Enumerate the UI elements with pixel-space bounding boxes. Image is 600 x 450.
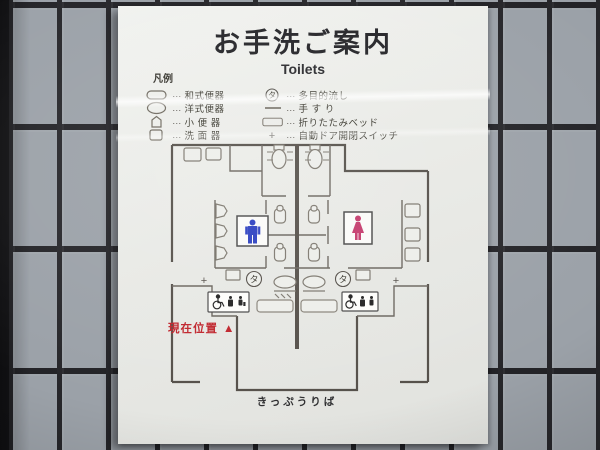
womens-room-sign <box>344 212 372 244</box>
multi-purpose-sink-symbol: タ <box>262 88 284 102</box>
multi-sink-char-right: タ <box>338 275 347 285</box>
legend-dots: … <box>172 116 182 127</box>
washbasins-top-left <box>184 148 221 161</box>
handrail-symbol <box>262 101 284 115</box>
accessibility-box-left <box>208 292 249 312</box>
auto-door-switch-left: + <box>201 275 207 287</box>
legend-item-squat-toilet: … 和式便器 <box>144 88 262 102</box>
legend-dots: … <box>172 89 182 100</box>
legend-dots: … <box>286 116 296 127</box>
urinal-symbol <box>144 115 170 129</box>
ticket-area-label: きっぷうりば <box>257 395 338 408</box>
squat-toilet-symbol <box>144 88 170 102</box>
urinals <box>216 204 227 260</box>
accessibility-box-right <box>342 292 378 311</box>
toilet-guide-sign: お手洗ご案内 Toilets 凡例 … 和式便器 … 洋式便器 <box>118 6 488 444</box>
legend-item-handrail: … 手 す り <box>262 102 480 116</box>
floor-plan: タ タ + + <box>118 134 488 434</box>
legend-dots: … <box>286 103 296 114</box>
current-location-label: 現在位置▲ <box>168 321 235 335</box>
legend: 凡例 … 和式便器 … 洋式便器 <box>144 70 480 142</box>
sign-title: お手洗ご案内 <box>118 6 488 60</box>
legend-heading: 凡例 <box>153 70 480 85</box>
mens-room-sign <box>237 216 268 246</box>
legend-dots: … <box>286 89 296 100</box>
location-marker-icon: ▲ <box>223 323 235 335</box>
legend-item-urinal: … 小 便 器 <box>144 115 262 129</box>
multi-sink-char-left: タ <box>249 275 258 285</box>
legend-item-folding-bed: … 折りたたみベッド <box>262 115 480 129</box>
svg-text:タ: タ <box>268 91 276 100</box>
wall-left-dark-edge <box>0 0 9 450</box>
folding-bed-symbol <box>262 115 284 129</box>
western-toilet-symbol <box>144 101 170 115</box>
auto-door-switch-right: + <box>393 275 399 287</box>
legend-item-multi-purpose-sink: タ … 多目的流し <box>262 88 480 102</box>
center-dividing-wall <box>295 145 299 349</box>
hatch-mark <box>275 294 291 298</box>
legend-item-western-toilet: … 洋式便器 <box>144 102 262 116</box>
washbasins-right-wall <box>405 204 420 261</box>
legend-dots: … <box>172 103 182 114</box>
